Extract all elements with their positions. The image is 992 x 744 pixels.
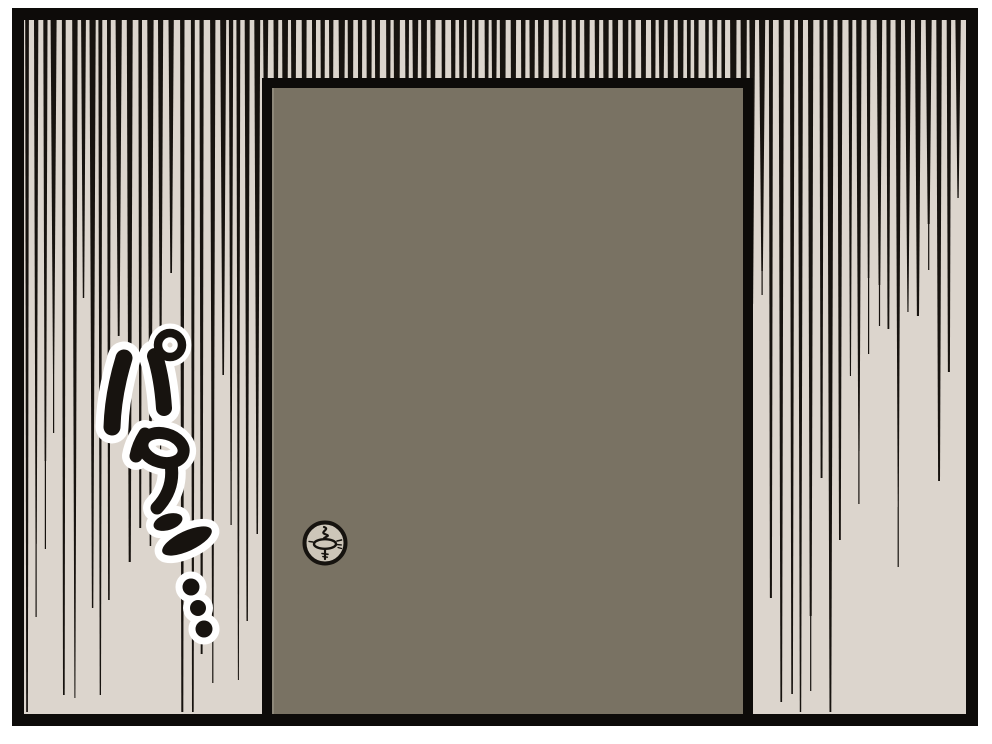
door [262, 78, 753, 714]
manga-panel: パタン… [12, 8, 978, 726]
panel-background: パタン… [24, 20, 966, 714]
door-edge-highlight [272, 88, 274, 714]
sfx-artwork [85, 318, 235, 653]
sfx-patan: パタン… [85, 318, 235, 653]
door-lock-icon [301, 519, 349, 567]
